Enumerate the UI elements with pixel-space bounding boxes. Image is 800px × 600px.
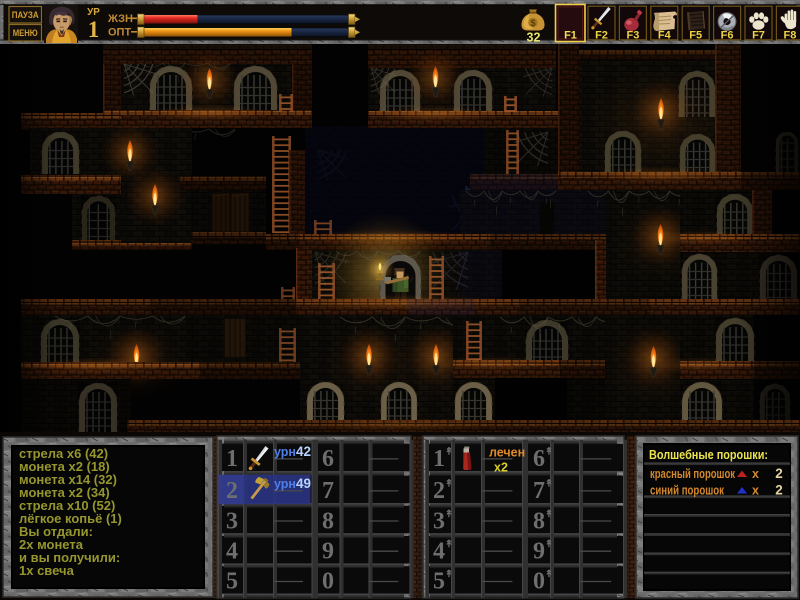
svg-text:↟: ↟ <box>545 479 553 490</box>
svg-text:4: 4 <box>433 539 445 565</box>
svg-text:красный порошок: красный порошок <box>650 467 736 481</box>
svg-text:F6: F6 <box>721 30 734 42</box>
svg-text:↟: ↟ <box>445 569 453 580</box>
svg-text:F8: F8 <box>783 30 796 42</box>
svg-text:4: 4 <box>226 539 238 565</box>
svg-text:6: 6 <box>533 446 545 472</box>
svg-text:F4: F4 <box>658 30 672 42</box>
svg-text:5: 5 <box>433 569 445 595</box>
svg-text:х2: х2 <box>494 461 508 475</box>
svg-text:лечен: лечен <box>489 446 525 460</box>
svg-text:3: 3 <box>433 508 445 534</box>
svg-text:МЕНЮ: МЕНЮ <box>13 28 38 38</box>
svg-text:7: 7 <box>322 478 334 504</box>
svg-text:F5: F5 <box>689 30 702 42</box>
svg-text:F2: F2 <box>595 30 608 42</box>
svg-text:8: 8 <box>322 508 334 534</box>
svg-text:синий порошок: синий порошок <box>650 484 725 498</box>
svg-text:7: 7 <box>533 478 545 504</box>
svg-text:урн42: урн42 <box>274 444 311 459</box>
svg-text:$: $ <box>530 18 536 29</box>
svg-text:0: 0 <box>322 569 334 595</box>
svg-text:0: 0 <box>533 569 545 595</box>
svg-text:2: 2 <box>775 466 783 481</box>
svg-text:9: 9 <box>322 539 334 565</box>
svg-text:↟: ↟ <box>445 447 453 458</box>
svg-text:F1: F1 <box>564 30 577 42</box>
svg-text:ОПТ: ОПТ <box>108 27 131 39</box>
svg-text:2: 2 <box>775 483 783 498</box>
svg-text:↟: ↟ <box>445 509 453 520</box>
svg-text:↟: ↟ <box>545 509 553 520</box>
svg-text:↟: ↟ <box>545 447 553 458</box>
svg-text:8: 8 <box>533 508 545 534</box>
svg-text:3: 3 <box>226 508 238 534</box>
svg-text:ПАУЗА: ПАУЗА <box>12 10 40 20</box>
svg-text:1: 1 <box>226 446 238 472</box>
svg-text:1: 1 <box>433 446 445 472</box>
svg-text:Волшебные порошки:: Волшебные порошки: <box>649 447 768 462</box>
svg-text:F7: F7 <box>752 30 765 42</box>
svg-text:↟: ↟ <box>545 569 553 580</box>
svg-text:1: 1 <box>88 17 100 42</box>
svg-text:1х свеча: 1х свеча <box>19 563 75 578</box>
svg-text:9: 9 <box>533 539 545 565</box>
svg-text:↟: ↟ <box>445 479 453 490</box>
svg-text:↟: ↟ <box>545 539 553 550</box>
svg-text:ЖЗН: ЖЗН <box>107 13 133 25</box>
svg-text:2: 2 <box>226 478 238 504</box>
svg-text:6: 6 <box>322 446 334 472</box>
svg-text:F3: F3 <box>626 30 639 42</box>
svg-text:урн49: урн49 <box>274 476 311 491</box>
svg-text:х: х <box>752 467 759 481</box>
svg-text:32: 32 <box>527 31 541 45</box>
svg-text:↟: ↟ <box>445 539 453 550</box>
svg-text:5: 5 <box>226 569 238 595</box>
svg-text:х: х <box>752 484 759 498</box>
svg-text:2: 2 <box>433 478 445 504</box>
